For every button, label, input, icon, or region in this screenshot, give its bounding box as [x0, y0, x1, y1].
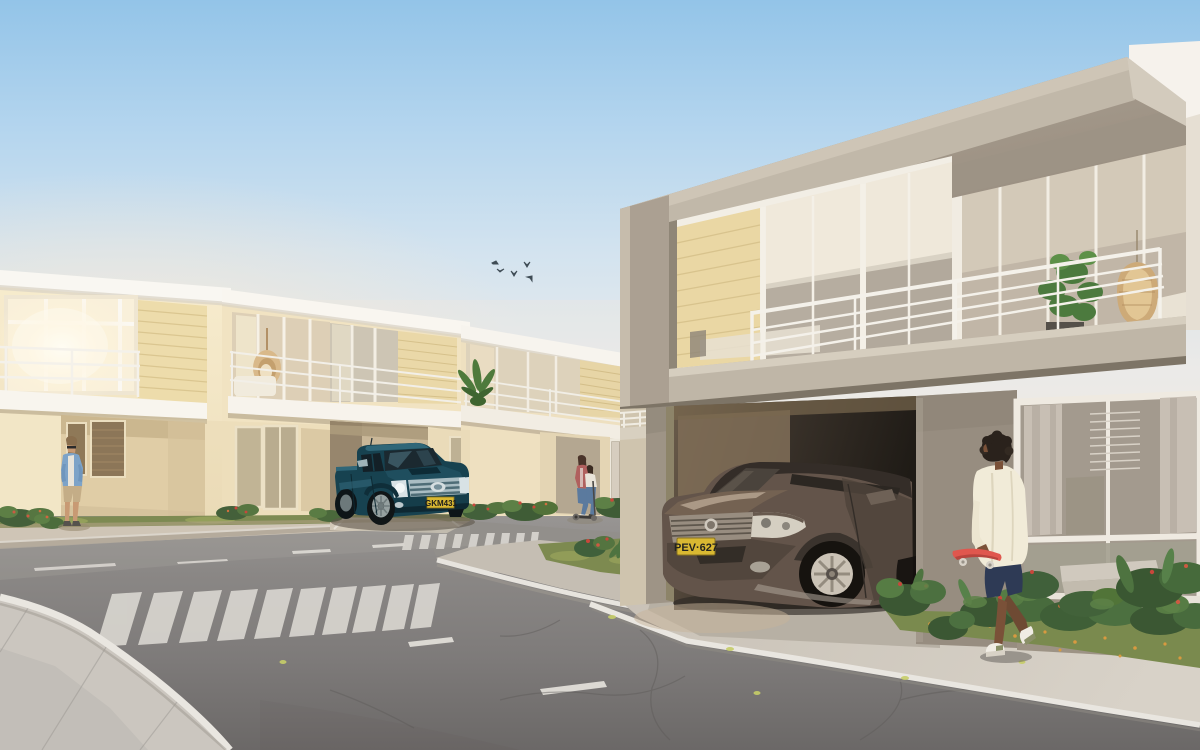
svg-text:GKM431: GKM431 [425, 499, 458, 508]
svg-text:PEV·627: PEV·627 [674, 542, 718, 554]
